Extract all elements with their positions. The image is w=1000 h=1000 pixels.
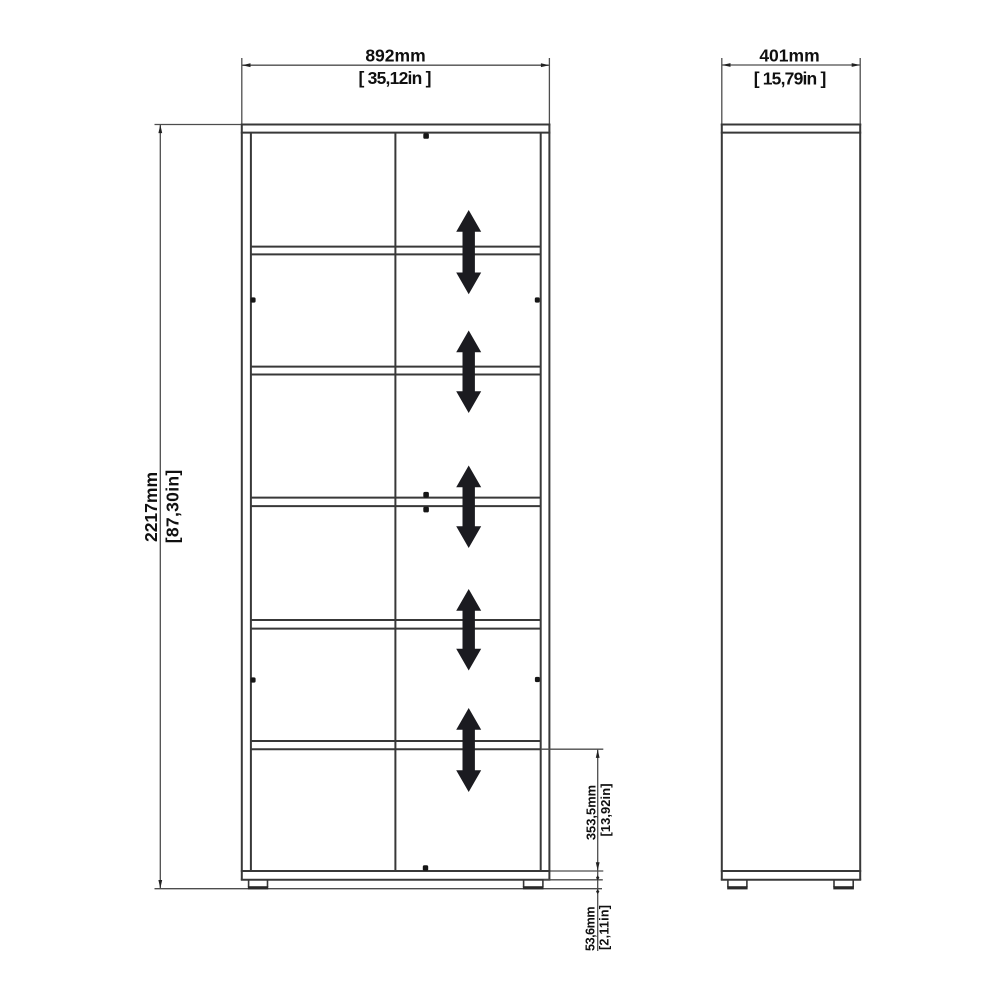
svg-text:[13,92in]: [13,92in] xyxy=(598,784,613,837)
svg-text:[2,11in]: [2,11in] xyxy=(598,905,612,950)
svg-text:2217mm: 2217mm xyxy=(141,472,161,542)
svg-text:[ 15,79in ]: [ 15,79in ] xyxy=(754,69,827,89)
svg-text:892mm: 892mm xyxy=(365,46,425,66)
svg-text:[ 35,12in ]: [ 35,12in ] xyxy=(359,68,432,88)
svg-text:353,5mm: 353,5mm xyxy=(584,785,599,840)
svg-text:53,6mm: 53,6mm xyxy=(584,906,598,951)
svg-text:401mm: 401mm xyxy=(759,46,819,66)
svg-text:[87,30in]: [87,30in] xyxy=(162,470,182,544)
